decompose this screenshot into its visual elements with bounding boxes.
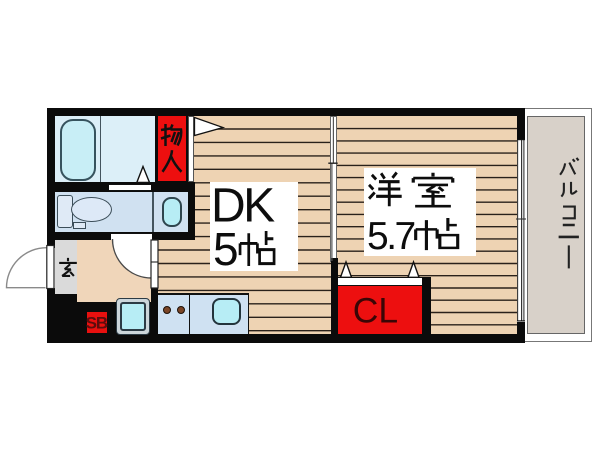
svg-text:SB: SB [86, 314, 108, 333]
svg-text:5: 5 [213, 223, 239, 275]
svg-text:5.7: 5.7 [367, 215, 415, 258]
svg-text:CL: CL [353, 290, 398, 330]
